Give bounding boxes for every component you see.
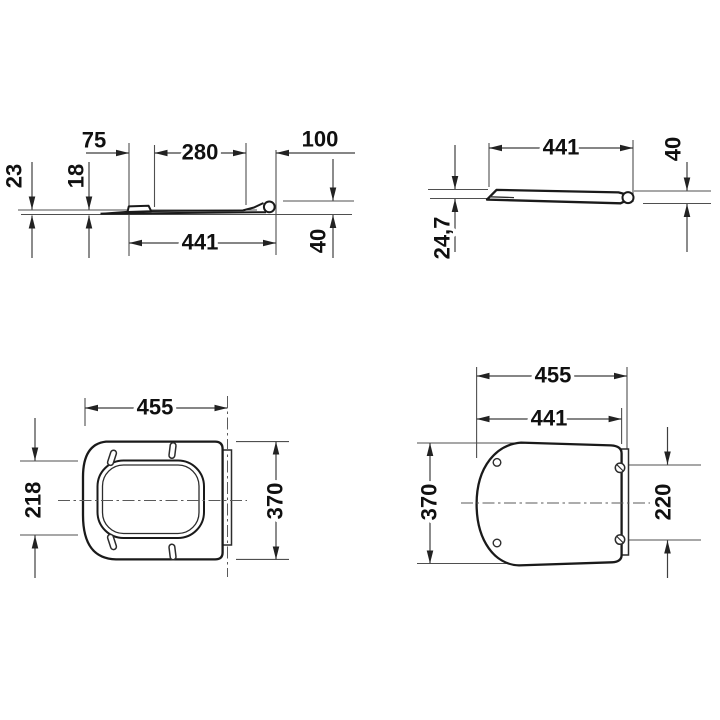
- technical-drawing-canvas: 75 280 100 441 23 18 40 441 24,7 40: [0, 0, 720, 720]
- dim-label-bumper-offset: 75: [82, 128, 106, 153]
- dim-label-opening-depth: 218: [21, 482, 46, 519]
- view-lid-side-profile: 441 24,7 40: [428, 135, 711, 260]
- lid-profile-outline: [487, 190, 627, 203]
- view-lid-plan: 455 441 370 220: [417, 363, 702, 579]
- dim-label-lid-length: 441: [543, 135, 580, 160]
- seat-profile-top-edge: [151, 210, 243, 211]
- dim-label-center-span: 280: [182, 140, 219, 165]
- lid-hinge-pin: [623, 192, 634, 203]
- dim-label-seat-depth: 370: [263, 483, 288, 520]
- dim-label-front-thickness: 23: [2, 164, 27, 188]
- dim-label-seat-rear-height: 40: [306, 229, 331, 253]
- lid-buffer-hole: [493, 459, 501, 467]
- dim-label-seat-length: 441: [182, 230, 219, 255]
- dim-label-seat-width: 455: [137, 395, 174, 420]
- seat-bumper-slot: [169, 442, 177, 458]
- dim-label-lid-rear-height: 40: [661, 137, 686, 161]
- dim-label-rear-span: 100: [302, 127, 339, 152]
- seat-front-bumper: [128, 206, 152, 212]
- seat-opening-outer: [98, 461, 205, 539]
- view-seat-side-profile: 75 280 100 441 23 18 40: [2, 127, 356, 259]
- dim-label-lid-overall-width: 455: [535, 363, 572, 388]
- seat-bumper-slot: [169, 544, 177, 560]
- dim-label-mid-thickness: 18: [64, 164, 89, 188]
- dim-label-hinge-spacing: 220: [651, 484, 676, 521]
- dim-label-lid-width: 441: [531, 406, 568, 431]
- lid-profile-detail-line: [490, 197, 514, 198]
- seat-hinge-pin: [264, 202, 275, 213]
- dim-label-lid-front-height: 24,7: [430, 217, 455, 260]
- technical-drawing-page: 75 280 100 441 23 18 40 441 24,7 40: [0, 0, 720, 720]
- view-seat-plan: 455 218 370: [20, 395, 289, 579]
- lid-buffer-hole: [493, 539, 501, 547]
- dim-label-lid-depth: 370: [417, 484, 442, 521]
